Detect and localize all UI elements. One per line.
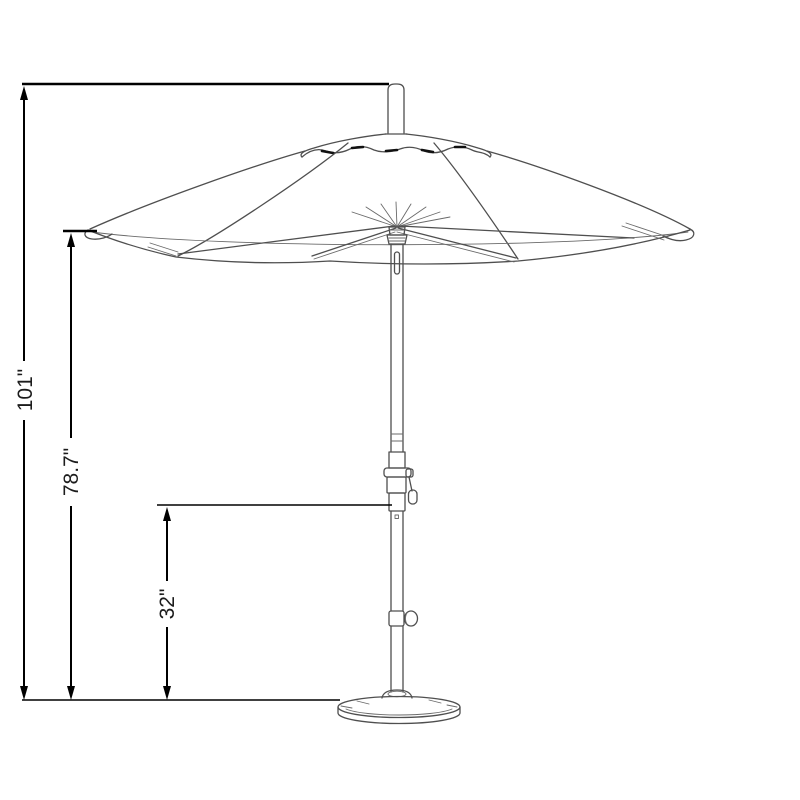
arrow-up-icon <box>163 507 171 521</box>
diagram-svg: 101" 78.7" 32" <box>0 0 800 800</box>
tilt-knob <box>389 611 418 626</box>
dimension-annotations: 101" 78.7" 32" <box>14 84 392 700</box>
umbrella-ribs <box>178 202 634 262</box>
dimension-height-to-canopy: 78.7" <box>60 233 83 700</box>
dimension-overall-height: 101" <box>14 86 37 700</box>
arrow-down-icon <box>20 686 28 700</box>
dimension-label-height-to-canopy: 78.7" <box>60 448 83 496</box>
umbrella-pole-middle <box>391 511 403 611</box>
crank-assembly <box>384 452 417 511</box>
umbrella-pole-lower <box>391 626 403 692</box>
umbrella-illustration <box>85 84 694 724</box>
arrow-down-icon <box>163 686 171 700</box>
arrow-up-icon <box>67 233 75 247</box>
umbrella-canopy <box>85 143 694 264</box>
umbrella-hub <box>387 227 407 244</box>
umbrella-base <box>338 690 460 724</box>
umbrella-pole-upper <box>391 244 403 452</box>
umbrella-vent-cap <box>301 134 491 157</box>
umbrella-dimension-diagram: 101" 78.7" 32" <box>0 0 800 800</box>
umbrella-finial <box>385 84 407 134</box>
dimension-label-overall-height: 101" <box>14 369 37 412</box>
dimension-label-height-to-lower-pole: 32" <box>156 589 179 620</box>
dimension-height-to-lower-pole: 32" <box>156 507 179 700</box>
arrow-down-icon <box>67 686 75 700</box>
